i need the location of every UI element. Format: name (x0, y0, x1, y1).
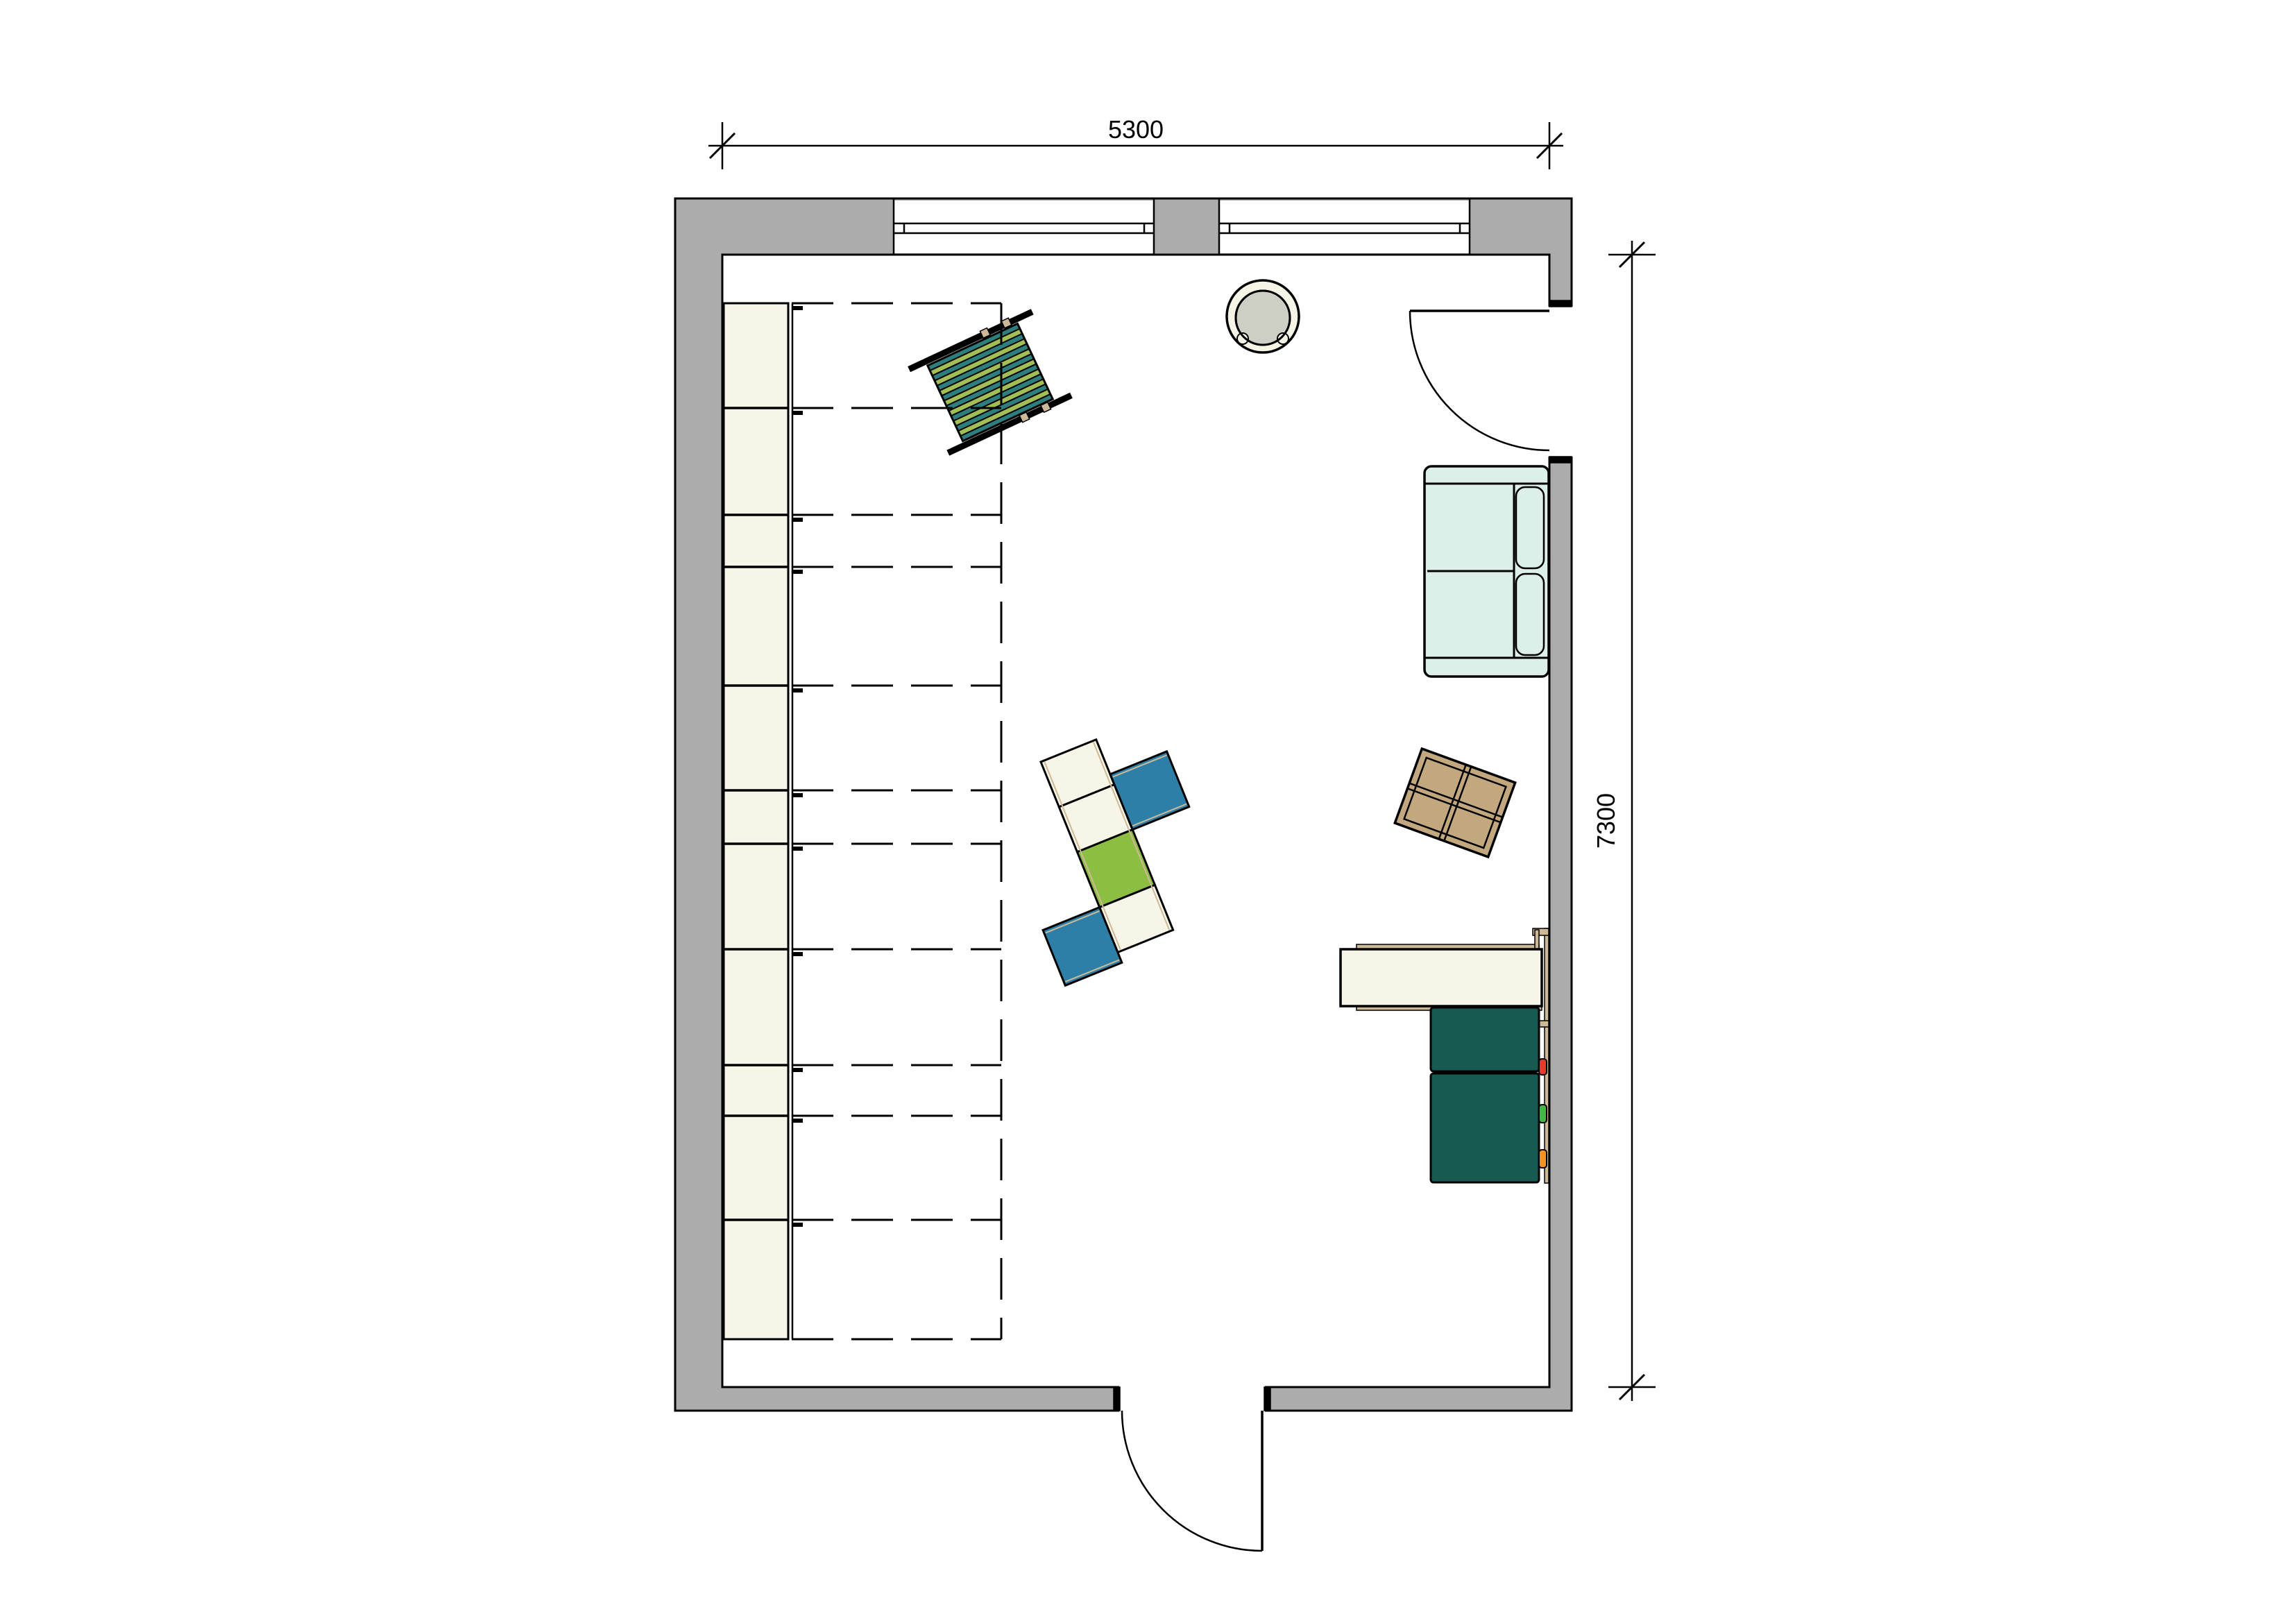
door-jamb (1114, 1387, 1120, 1411)
top-window-right (1219, 199, 1470, 254)
door-jamb (1264, 1387, 1270, 1411)
top-window-left (894, 199, 1154, 254)
door-jamb (1549, 300, 1572, 307)
door-jamb (1549, 457, 1572, 463)
round-stool (1227, 280, 1299, 352)
door-bottom (1114, 1385, 1270, 1551)
dimension-top: 5300 (708, 115, 1563, 169)
desk-top (1341, 949, 1542, 1006)
floor-plan-canvas: 5300 7300 (0, 0, 2296, 1623)
desk-teal-panel (1431, 1008, 1539, 1071)
dimension-right: 7300 (1592, 241, 1656, 1401)
dimension-height-label: 7300 (1592, 793, 1620, 849)
sofa (1425, 466, 1549, 677)
floor-plan-drawing: 5300 7300 (0, 0, 2296, 1623)
knob-red (1539, 1059, 1547, 1075)
knob-green (1539, 1105, 1547, 1123)
desk-teal-panel (1431, 1073, 1539, 1182)
knob-orange (1539, 1150, 1547, 1168)
dimension-width-label: 5300 (1108, 115, 1164, 144)
door-swing-arc (1122, 1411, 1262, 1551)
